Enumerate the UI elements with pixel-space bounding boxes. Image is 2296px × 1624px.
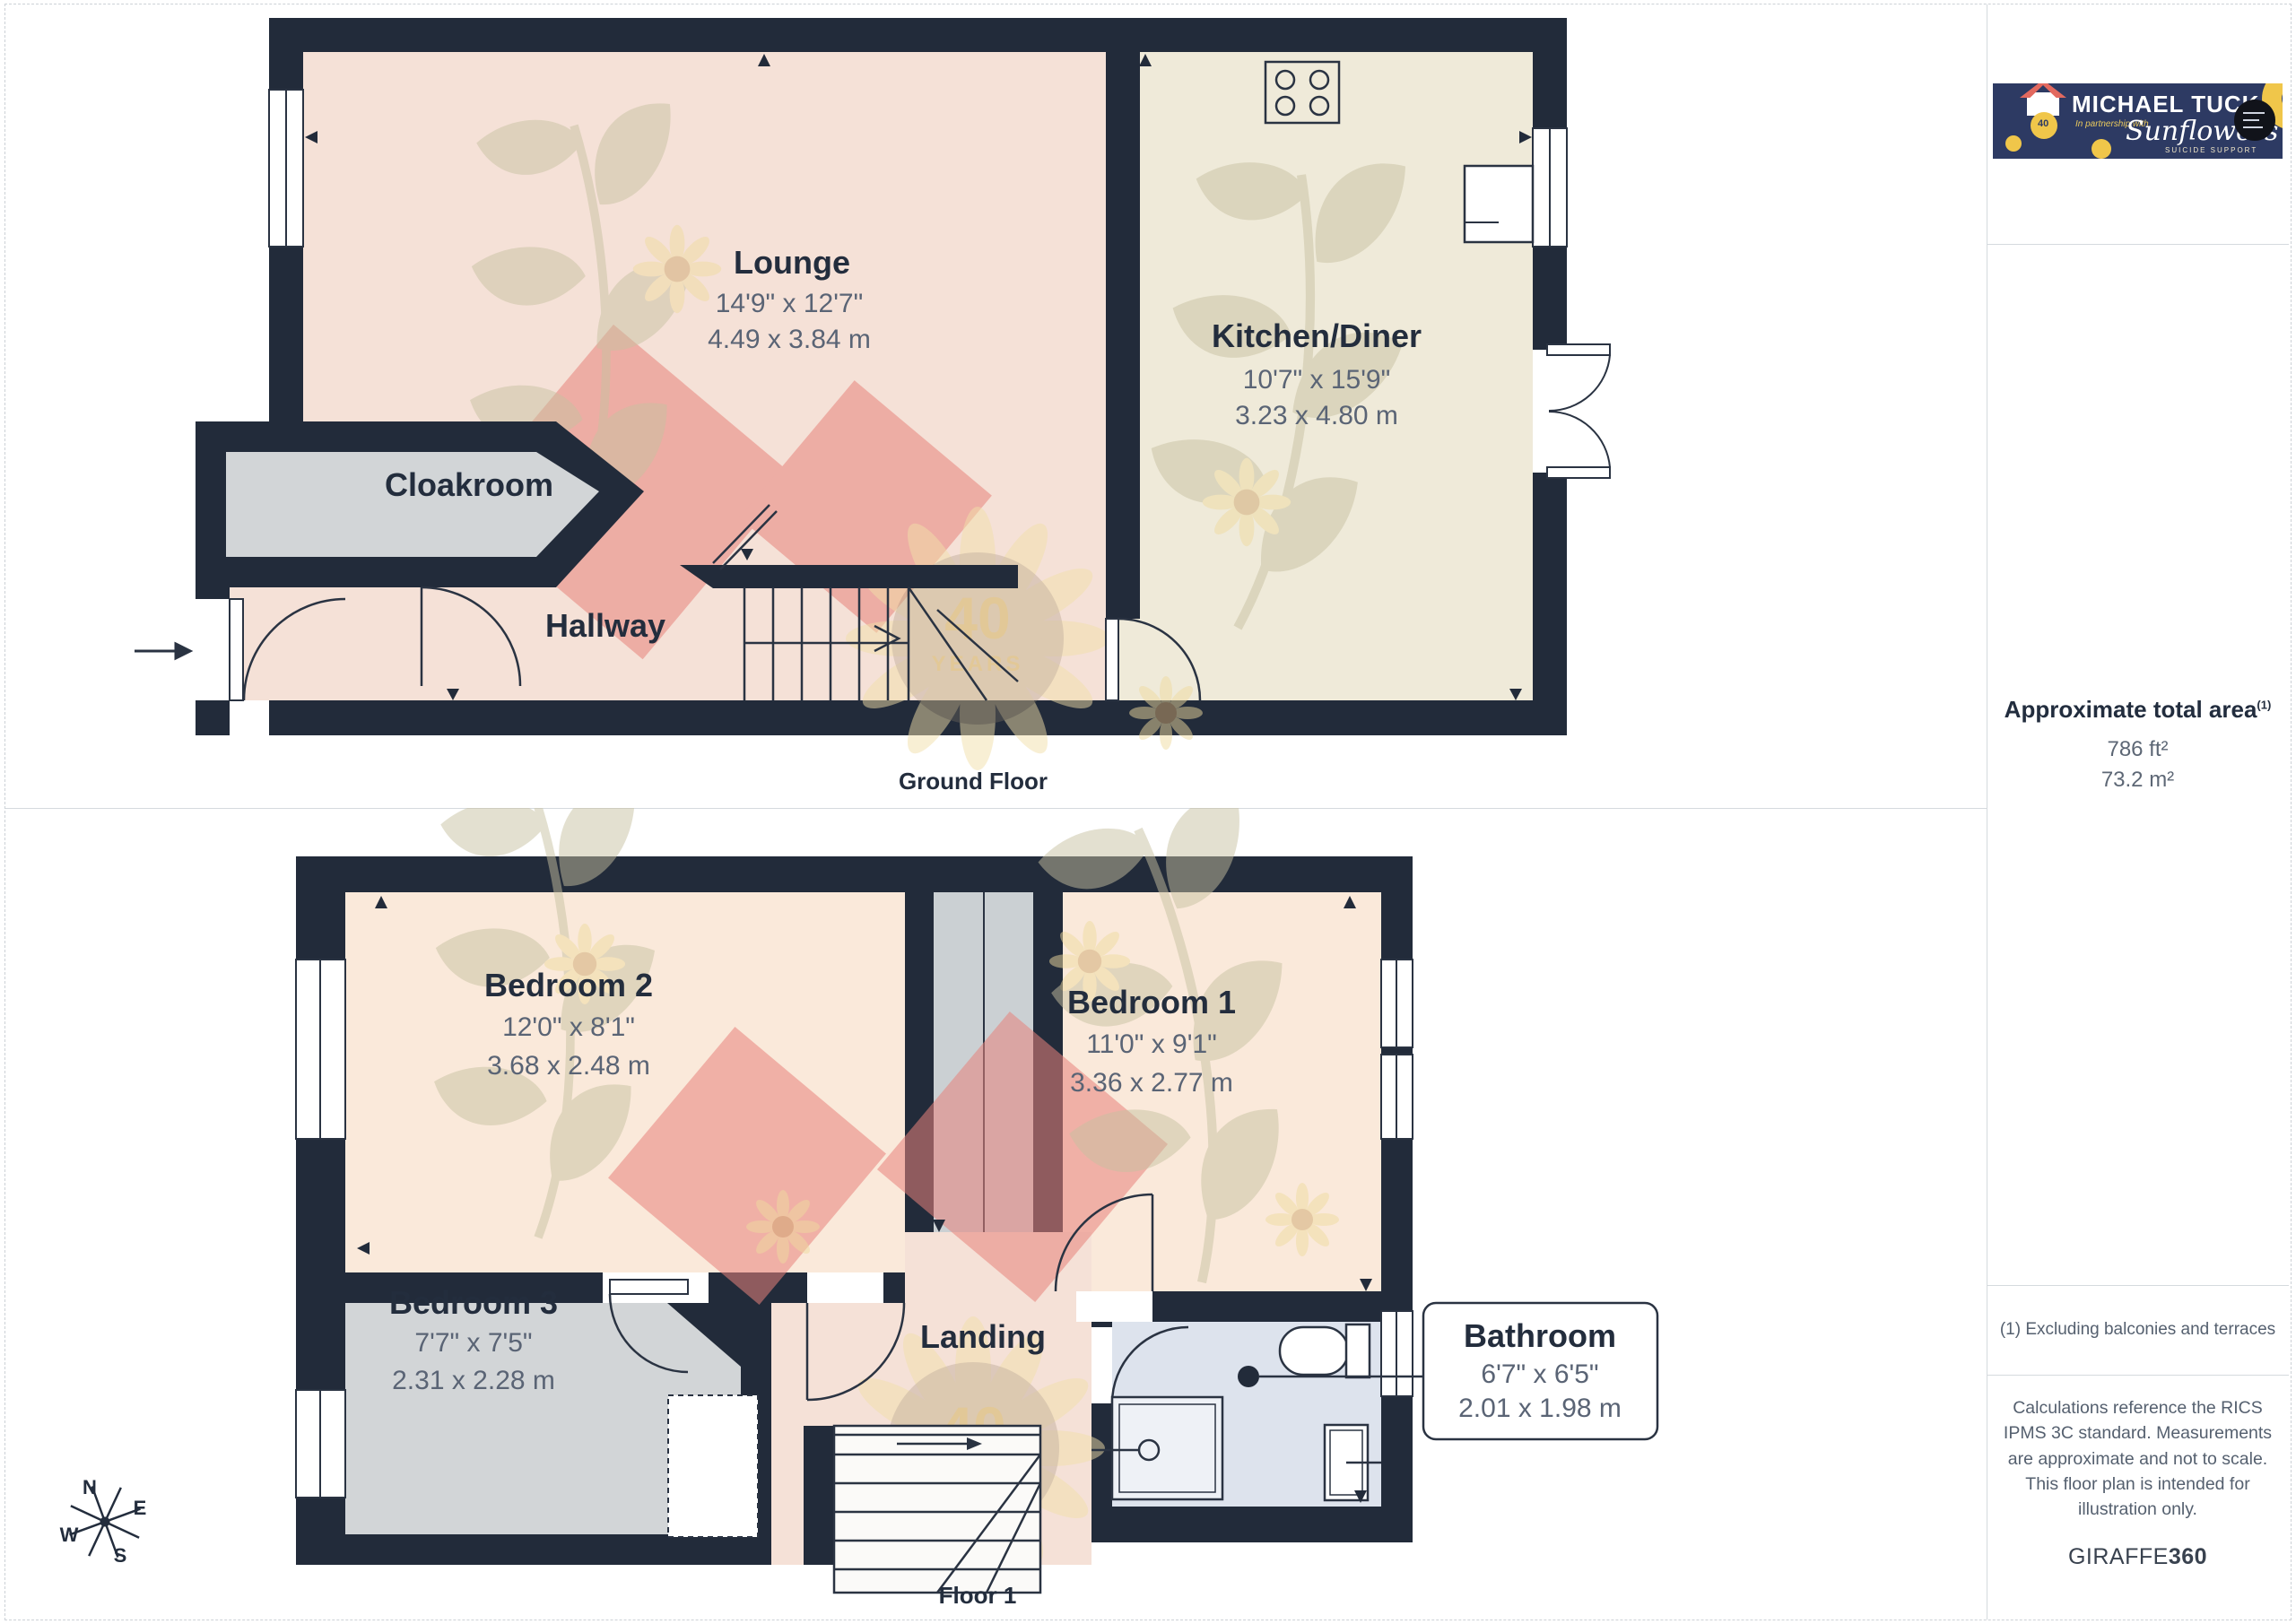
landing-label: Landing (920, 1318, 1046, 1355)
bathroom-dim-metric: 2.01 x 1.98 m (1458, 1394, 1622, 1423)
sidebar-divider (1987, 4, 1987, 1620)
toilet-icon (1280, 1327, 1348, 1375)
bedroom3-dim-metric: 2.31 x 2.28 m (392, 1366, 555, 1395)
logo-40-years: 40 (2038, 118, 2048, 129)
disclaimer-text: Calculations reference the RICS IPMS 3C … (2002, 1395, 2274, 1522)
compass-north: N (83, 1476, 97, 1498)
ground-floor-title: Ground Floor (899, 768, 1048, 795)
compass-south: S (114, 1544, 127, 1567)
kitchen-dim-imperial: 10'7" x 15'9" (1243, 365, 1391, 395)
bedroom1-dim-metric: 3.36 x 2.77 m (1070, 1068, 1233, 1098)
agency-logo: 40 MICHAEL TUCK In partnership with Sunf… (1993, 83, 2283, 159)
cloakroom-label: Cloakroom (385, 466, 553, 503)
bedroom1-dim-imperial: 11'0" x 9'1" (1086, 1029, 1217, 1059)
accreditation-badge-icon (2234, 100, 2275, 141)
area-footnote: (1) Excluding balconies and terraces (1987, 1320, 2289, 1340)
kitchen-window-unit (1465, 166, 1533, 242)
logo-partner-subtitle: SUICIDE SUPPORT (2165, 146, 2257, 154)
lounge-kitchen-wall (1106, 52, 1140, 619)
floorplan-page: { "ground_floor": { "label": "Ground Flo… (0, 0, 2296, 1624)
kitchen-label: Kitchen/Diner (1212, 317, 1422, 354)
bedroom2-label: Bedroom 2 (484, 967, 653, 1003)
total-area-metric: 73.2 m² (1987, 768, 2289, 793)
bedroom2-dim-metric: 3.68 x 2.48 m (487, 1051, 650, 1081)
floor-1-title: Floor 1 (939, 1582, 1017, 1609)
giraffe360-brand: GIRAFFE360 (1987, 1544, 2289, 1570)
sidebar-divider-3 (1987, 1375, 2289, 1376)
lounge-label: Lounge (734, 244, 850, 281)
sidebar-divider-1 (1987, 244, 2289, 245)
kitchen-dim-metric: 3.23 x 4.80 m (1235, 401, 1398, 430)
compass-east: E (134, 1497, 147, 1519)
footnote-marker: (1) (2257, 698, 2271, 711)
hallway-label: Hallway (545, 607, 665, 644)
badge-40-text: 40 (944, 585, 1010, 651)
shower-icon (1112, 1397, 1222, 1499)
bathroom-label: Bathroom (1464, 1317, 1616, 1354)
lounge-dim-imperial: 14'9" x 12'7" (716, 289, 864, 318)
gf-40-years-badge: 40 YEARS (932, 585, 1024, 676)
compass-icon: N E W S (60, 1476, 147, 1567)
ground-floor-plan: 40 YEARS (0, 0, 1987, 808)
logo-title: MICHAEL TUCK (2072, 91, 2259, 118)
lounge-dim-metric: 4.49 x 3.84 m (708, 325, 871, 354)
f1-stairs (804, 1426, 1040, 1593)
total-area-imperial: 786 ft² (1987, 737, 2289, 762)
bathroom-dim-imperial: 6'7" x 6'5" (1481, 1359, 1598, 1389)
stairs-wall (680, 565, 1018, 588)
bedroom1-label: Bedroom 1 (1067, 984, 1236, 1020)
compass-west: W (60, 1524, 79, 1546)
bedroom3-label: Bedroom 3 (389, 1284, 558, 1321)
floor-1-plan: 40 YEARS (0, 808, 1987, 1624)
hob-icon (1265, 62, 1339, 123)
badge-years-text: YEARS (932, 652, 1024, 676)
bedroom3-dim-imperial: 7'7" x 7'5" (414, 1328, 532, 1358)
total-area-title: Approximate total area(1) (1987, 696, 2289, 724)
bedroom2-dim-imperial: 12'0" x 8'1" (502, 1012, 635, 1042)
cupboard (668, 1395, 758, 1537)
entry-arrow-icon (135, 644, 190, 658)
sidebar-divider-2 (1987, 1285, 2289, 1286)
